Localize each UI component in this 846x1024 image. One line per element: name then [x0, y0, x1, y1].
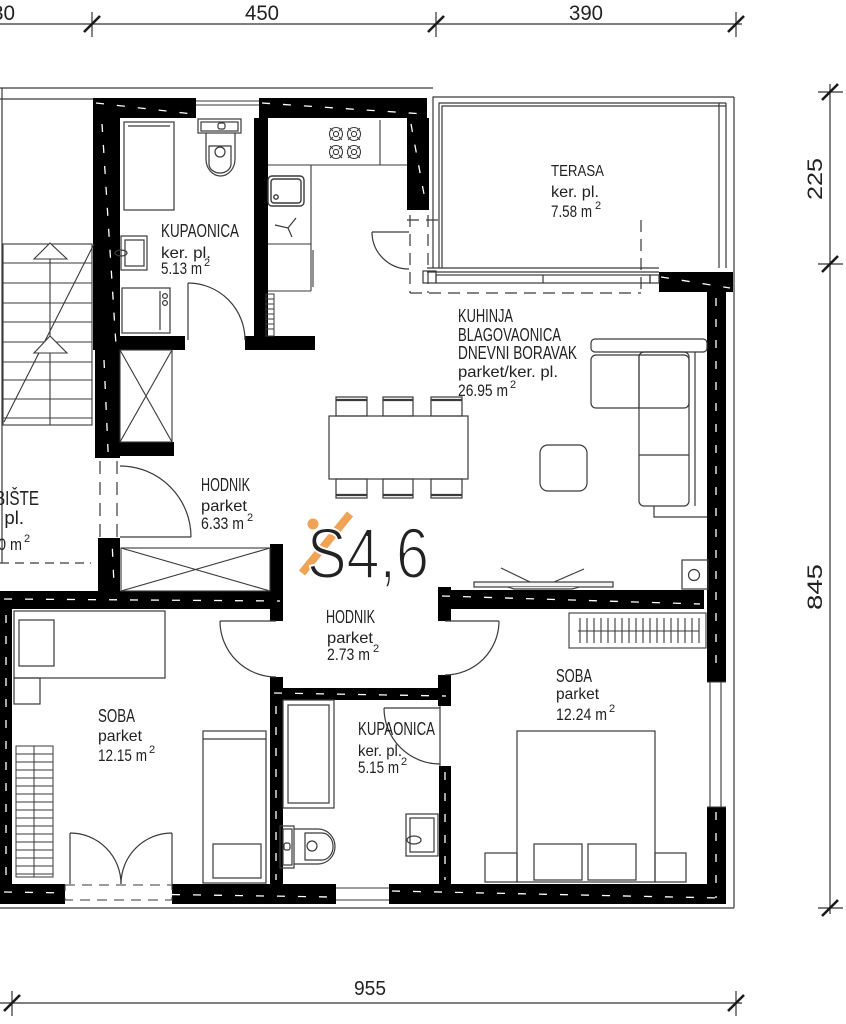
svg-text:390: 390 [569, 2, 603, 25]
svg-text:2: 2 [24, 533, 30, 545]
svg-text:ker. pl.: ker. pl. [551, 184, 599, 201]
svg-text:2: 2 [510, 379, 516, 391]
svg-text:2: 2 [401, 756, 407, 768]
svg-text:2: 2 [595, 200, 601, 212]
svg-text:parket/ker. pl.: parket/ker. pl. [458, 364, 558, 381]
svg-text:26.95 m: 26.95 m [458, 381, 508, 400]
svg-text:12.24 m: 12.24 m [556, 705, 607, 724]
svg-text:2: 2 [247, 512, 253, 524]
svg-text:2: 2 [373, 643, 379, 655]
svg-text:5.15 m: 5.15 m [358, 758, 399, 777]
svg-text:6.33 m: 6.33 m [201, 514, 244, 533]
svg-text:TERASA: TERASA [551, 163, 604, 180]
svg-text:HODNIK: HODNIK [326, 607, 375, 627]
svg-text:BIŠTE: BIŠTE [0, 487, 39, 510]
svg-text:. pl.: . pl. [0, 508, 24, 528]
svg-text:0 m: 0 m [0, 535, 22, 554]
svg-text:BLAGOVAONICA: BLAGOVAONICA [458, 325, 561, 345]
svg-text:KUPAONICA: KUPAONICA [358, 719, 435, 739]
svg-text:955: 955 [354, 978, 386, 1000]
svg-text:SOBA: SOBA [556, 666, 592, 686]
svg-text:S4,6: S4,6 [307, 515, 429, 594]
svg-text:KUPAONICA: KUPAONICA [161, 221, 239, 241]
svg-text:2: 2 [149, 744, 155, 756]
svg-text:KUHINJA: KUHINJA [458, 306, 513, 326]
svg-text:12.15 m: 12.15 m [98, 746, 147, 765]
svg-text:2.73 m: 2.73 m [327, 645, 370, 664]
svg-text:7.58 m: 7.58 m [551, 202, 592, 221]
svg-text:2: 2 [609, 703, 615, 715]
svg-text:parket: parket [556, 686, 600, 703]
svg-text:450: 450 [245, 2, 279, 25]
svg-text:SOBA: SOBA [98, 706, 135, 726]
svg-text:225: 225 [804, 158, 827, 200]
svg-text:parket: parket [98, 728, 143, 745]
svg-text:DNEVNI BORAVAK: DNEVNI BORAVAK [458, 343, 577, 363]
svg-text:parket: parket [201, 498, 248, 515]
svg-text:30: 30 [0, 2, 15, 25]
svg-text:HODNIK: HODNIK [201, 475, 250, 495]
svg-text:5.13 m: 5.13 m [161, 259, 202, 278]
svg-text:2: 2 [204, 257, 210, 269]
svg-text:845: 845 [804, 564, 827, 610]
